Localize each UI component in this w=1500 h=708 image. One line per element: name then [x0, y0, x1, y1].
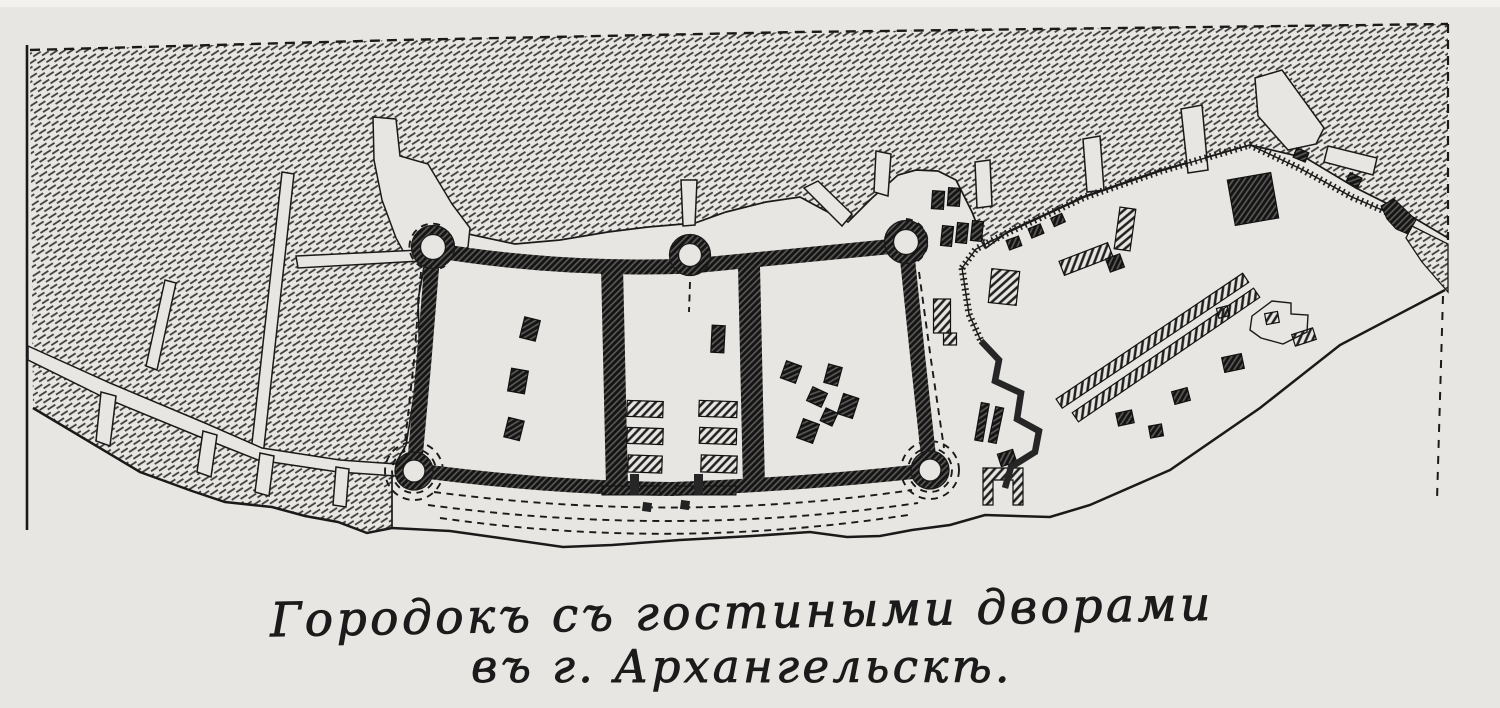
tower-se — [911, 451, 949, 489]
building — [1116, 410, 1134, 426]
tower-nw — [412, 226, 455, 269]
building — [934, 299, 951, 333]
mid-tower-dashed-line — [689, 282, 690, 312]
building — [1149, 424, 1164, 438]
caption-line-2: въ г. Архангельскѣ. — [471, 640, 1013, 693]
gate-stub-east — [694, 474, 703, 495]
scanned-plan-page: Городокъ съ гостиными дворами въ г. Арха… — [0, 0, 1500, 708]
building — [970, 220, 983, 241]
glacis-post-2 — [680, 500, 690, 510]
row-building — [699, 427, 737, 444]
tower-north-middle — [670, 235, 711, 276]
street-mid-1 — [681, 180, 697, 226]
building — [955, 222, 968, 243]
inner-wall-west — [612, 266, 617, 487]
building — [944, 333, 957, 345]
block-gap-4 — [333, 467, 349, 507]
page-edge-highlight — [0, 0, 1500, 7]
street-right-1 — [1083, 136, 1104, 192]
tower-sw — [395, 452, 433, 490]
building — [508, 368, 529, 394]
inner-wall-east — [749, 266, 754, 487]
building — [711, 325, 725, 353]
street-right-0 — [975, 160, 992, 208]
row-building — [701, 455, 738, 473]
large-building — [1227, 173, 1278, 226]
row-building — [627, 400, 664, 417]
building — [1222, 354, 1245, 373]
row-building — [699, 400, 738, 417]
gate-bar-east — [676, 486, 736, 495]
building — [931, 191, 944, 210]
arkhangelsk-plan-map: Городокъ съ гостиными дворами въ г. Арха… — [0, 0, 1500, 708]
building — [1216, 306, 1229, 319]
building — [1265, 311, 1280, 324]
tower-ne — [885, 221, 928, 264]
gate-stub-west — [630, 474, 639, 495]
building — [988, 269, 1019, 306]
building — [947, 188, 960, 207]
row-building — [627, 427, 664, 444]
building — [940, 225, 953, 246]
street-mid-2 — [874, 151, 891, 196]
glacis-post-1 — [642, 502, 652, 512]
row-building — [628, 455, 663, 473]
